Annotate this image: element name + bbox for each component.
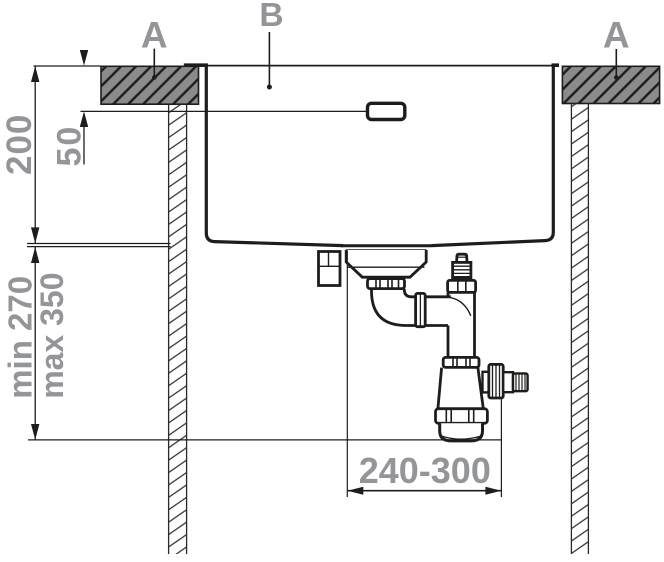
svg-text:max 350: max 350 [34,272,70,398]
svg-text:B: B [259,0,283,34]
svg-text:min 270: min 270 [2,276,39,399]
svg-text:240-300: 240-300 [359,450,491,491]
svg-text:50: 50 [51,125,89,167]
svg-text:200: 200 [0,114,39,175]
